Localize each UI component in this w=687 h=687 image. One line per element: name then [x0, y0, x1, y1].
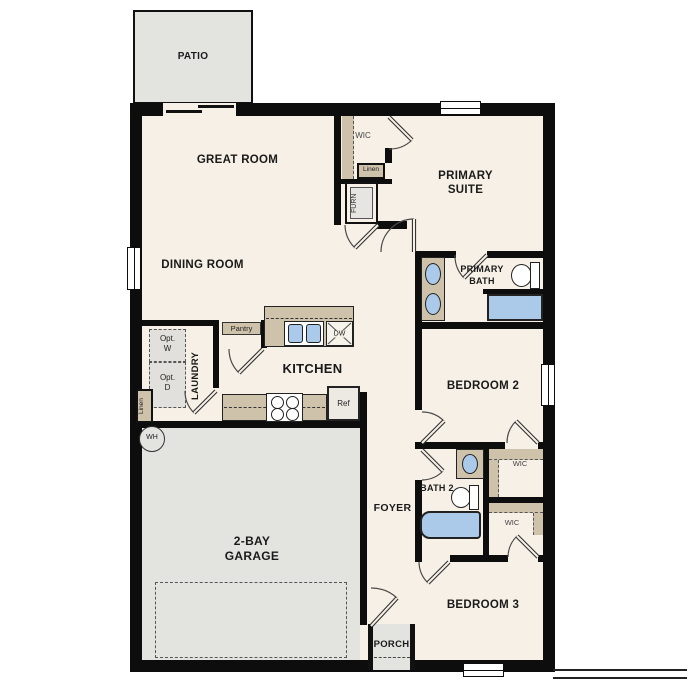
foyer-label: FOYER: [365, 502, 420, 515]
island-overhang-line: [266, 318, 352, 319]
optional-dryer-label: Opt. D: [156, 373, 179, 392]
site-line: [553, 669, 687, 671]
wall: [415, 322, 543, 329]
window: [463, 663, 504, 677]
wic-shelf: [489, 503, 543, 513]
toilet-tank: [530, 262, 540, 289]
wic-bedroom2-label: WIC: [504, 459, 536, 468]
burner: [286, 408, 299, 421]
wic-shelf: [533, 513, 543, 535]
toilet-bowl: [511, 264, 532, 287]
wall: [487, 251, 543, 258]
pantry-label: Pantry: [223, 324, 260, 333]
vanity-sink: [425, 263, 441, 285]
wic-primary-label: WIC: [348, 131, 378, 141]
site-line: [553, 677, 687, 679]
pantry-closet: Pantry: [222, 322, 261, 335]
wall: [538, 442, 543, 449]
garage-door-outline: [155, 582, 347, 658]
linen-closet-upper: Linen: [357, 163, 385, 179]
window: [440, 101, 481, 115]
bedroom2-label: BEDROOM 2: [433, 379, 533, 393]
floor-plan: PATIO Linen FURN: [0, 0, 687, 687]
dining-room-label: DINING ROOM: [160, 258, 245, 272]
toilet-bowl: [451, 487, 471, 508]
sink-basin: [288, 324, 303, 343]
wall: [142, 421, 367, 428]
wic-bedroom3-label: WIC: [496, 518, 528, 527]
vanity-sink: [425, 293, 441, 315]
wall: [334, 116, 341, 225]
wic-shelf: [342, 116, 354, 179]
burner: [271, 408, 284, 421]
porch-label: PORCH: [368, 639, 415, 651]
wall: [213, 320, 219, 388]
linen-closet-laundry: Linen: [136, 389, 153, 423]
wall: [377, 221, 407, 229]
kitchen-label: KITCHEN: [270, 361, 355, 377]
window: [127, 247, 141, 290]
wall: [142, 320, 219, 326]
water-heater-label: WH: [140, 434, 164, 441]
wall: [415, 555, 422, 562]
vanity-sink: [462, 454, 478, 474]
primary-bath-label: PRIMARY BATH: [450, 264, 514, 287]
linen-laundry-label: Linen: [138, 391, 151, 421]
water-heater: WH: [139, 426, 165, 452]
optional-dryer: Opt. D: [149, 362, 186, 408]
patio-label: PATIO: [133, 51, 253, 64]
sliding-door-panel: [198, 105, 234, 108]
wall: [415, 442, 505, 449]
bathtub: [420, 511, 481, 539]
bath2-label: BATH 2: [420, 483, 454, 493]
dishwasher: DW: [326, 321, 353, 346]
wall: [385, 148, 392, 163]
bedroom3-label: BEDROOM 3: [433, 598, 533, 612]
furnace-unit: FURN: [350, 187, 373, 219]
optional-washer-label: Opt. W: [156, 334, 179, 353]
sliding-door-panel: [166, 110, 202, 113]
laundry-label: LAUNDRY: [190, 344, 208, 408]
wall: [450, 555, 508, 562]
wic-shelf: [489, 460, 499, 497]
toilet-tank: [469, 485, 479, 510]
sink-basin: [306, 324, 321, 343]
window: [541, 364, 555, 406]
furnace-closet: FURN: [345, 182, 378, 224]
wall: [538, 555, 543, 562]
shower: [487, 294, 543, 321]
porch-step-line: [374, 657, 410, 658]
furnace-label: FURN: [351, 188, 372, 218]
great-room-label: GREAT ROOM: [195, 153, 280, 167]
primary-suite-label: PRIMARY SUITE: [423, 169, 508, 198]
refrigerator: Ref: [327, 386, 360, 421]
garage-label: 2-BAY GARAGE: [208, 534, 296, 564]
refrigerator-label: Ref: [329, 399, 358, 408]
optional-washer: Opt. W: [149, 329, 186, 362]
range-stove: [266, 393, 303, 422]
linen-upper-label: Linen: [359, 166, 383, 173]
wall: [415, 329, 422, 410]
dishwasher-label: DW: [333, 330, 347, 337]
